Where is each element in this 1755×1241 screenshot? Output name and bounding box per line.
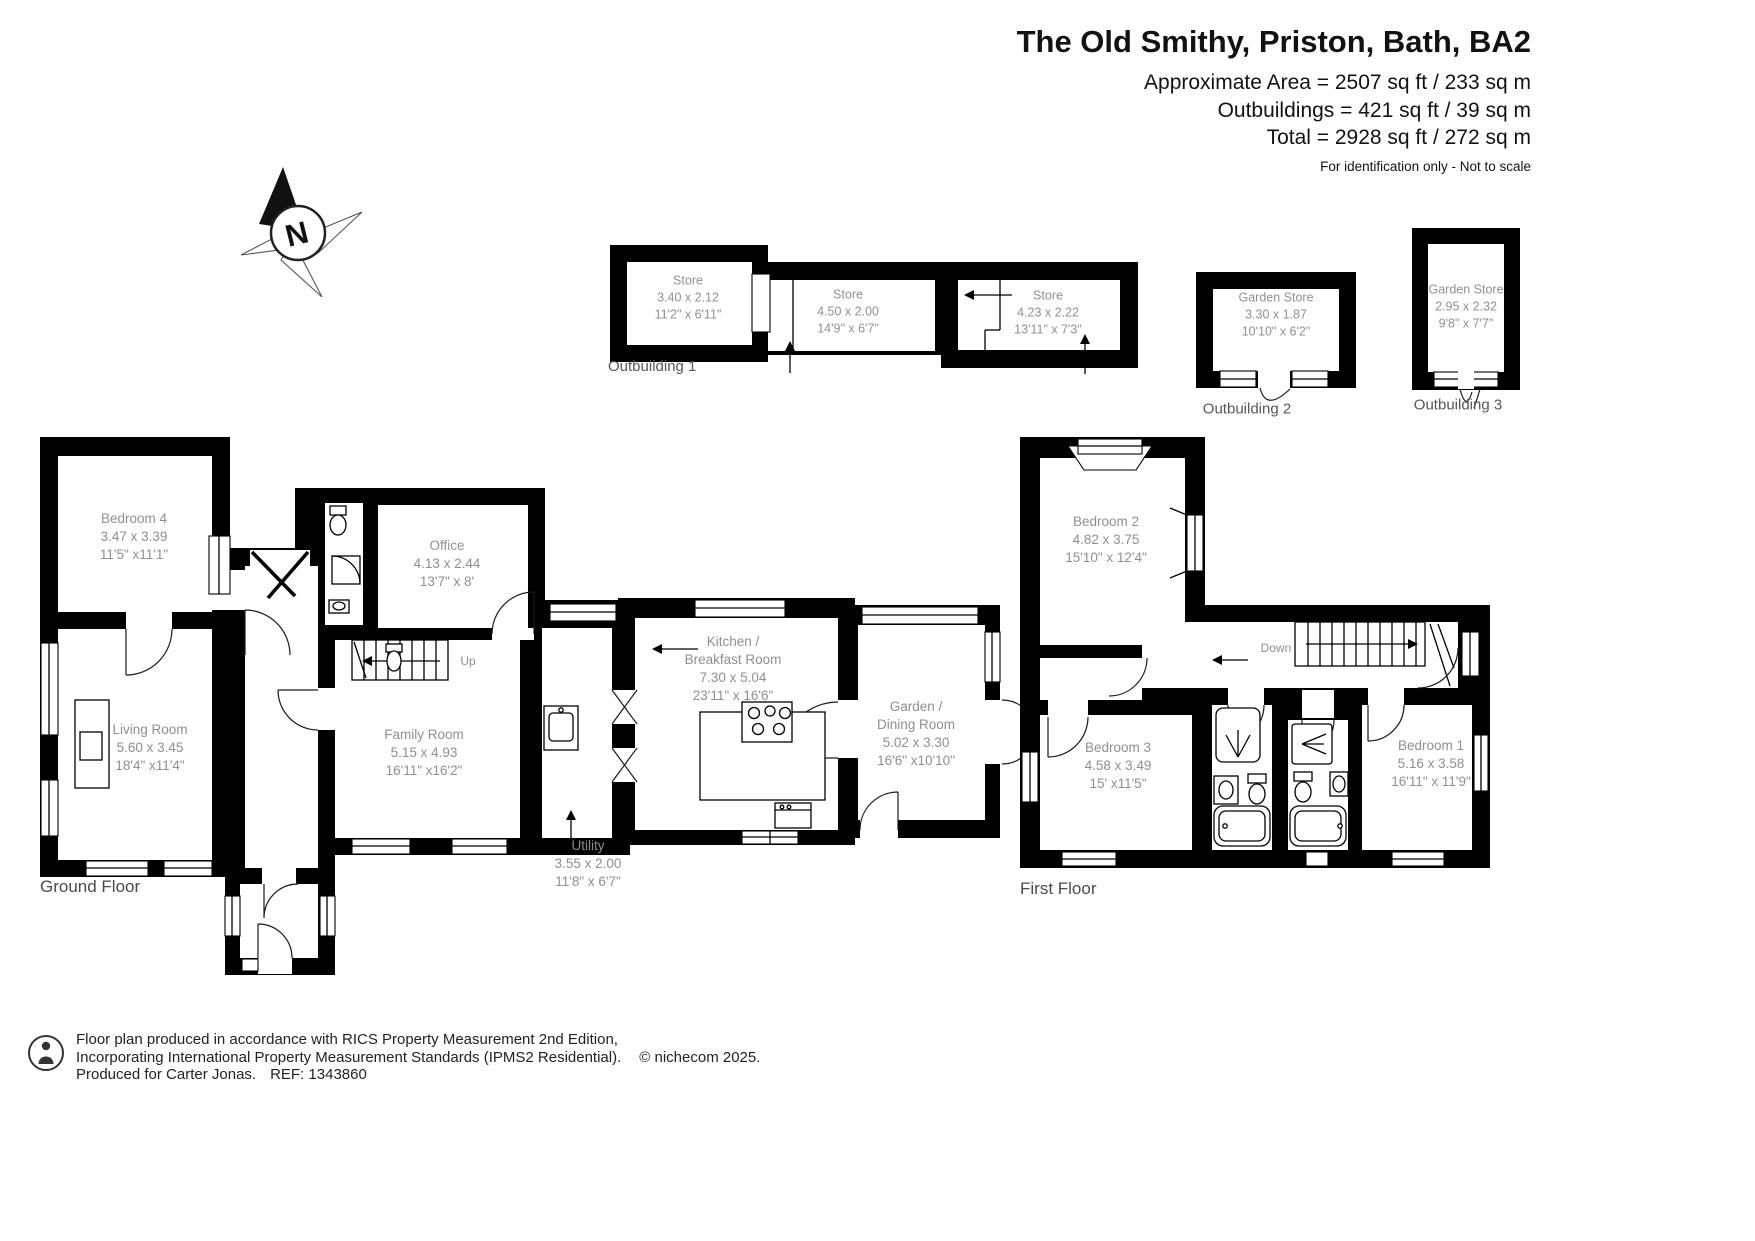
room-label-bedroom3: Bedroom 3 4.58 x 3.49 15' x11'5" <box>1085 739 1152 793</box>
room-label-store2: Store 4.50 x 2.00 14'9" x 6'7" <box>817 287 879 338</box>
disclaimer: For identification only - Not to scale <box>1017 159 1531 174</box>
room-label-garden-store2: Garden Store 3.30 x 1.87 10'10" x 6'2" <box>1238 290 1313 341</box>
shower-cubicle-icon <box>1216 708 1260 762</box>
outbuilding3-label: Outbuilding 3 <box>1414 397 1502 414</box>
bathtub-icon <box>1290 806 1346 846</box>
toilet-icon <box>1248 774 1266 804</box>
room-label-living-room: Living Room 5.60 x 3.45 18'4" x11'4" <box>112 721 187 775</box>
ground-floor-title: Ground Floor <box>40 877 140 897</box>
shower-cubicle-icon <box>1292 724 1332 764</box>
room-label-garden-store3: Garden Store 2.95 x 2.32 9'8" x 7'7" <box>1428 282 1503 333</box>
room-label-office: Office 4.13 x 2.44 13'7" x 8' <box>414 537 481 591</box>
room-label-bedroom4: Bedroom 4 3.47 x 3.39 11'5" x11'1" <box>100 510 168 564</box>
footer-line3: Produced for Carter Jonas.REF: 1343860 <box>76 1066 760 1084</box>
copyright: © nichecom 2025. <box>639 1049 760 1066</box>
toilet-icon <box>330 506 346 535</box>
utility-sink-icon <box>544 706 578 750</box>
sink-icon <box>329 600 349 613</box>
outbuilding2-label: Outbuilding 2 <box>1203 401 1291 418</box>
reference-number: REF: 1343860 <box>270 1066 367 1083</box>
bathtub-icon <box>1214 806 1270 846</box>
ground-floor-walls <box>40 437 1002 975</box>
person-scale-icon <box>29 1036 63 1070</box>
area-summary: Approximate Area = 2507 sq ft / 233 sq m… <box>1017 69 1531 152</box>
footer-line1: Floor plan produced in accordance with R… <box>76 1031 760 1049</box>
header: The Old Smithy, Priston, Bath, BA2 Appro… <box>1017 24 1531 174</box>
page-title: The Old Smithy, Priston, Bath, BA2 <box>1017 24 1531 60</box>
hob-icon <box>742 702 792 742</box>
stairs-up-label: Up <box>460 654 475 668</box>
room-label-utility: Utility 3.55 x 2.00 11'8" x 6'7" <box>555 837 622 891</box>
outbuilding1-label: Outbuilding 1 <box>608 358 696 375</box>
first-floor-title: First Floor <box>1020 879 1097 899</box>
toilet-icon <box>1294 772 1312 802</box>
room-label-bedroom1: Bedroom 1 5.16 x 3.58 16'11" x 11'9" <box>1391 737 1471 791</box>
footer: Floor plan produced in accordance with R… <box>76 1031 760 1084</box>
appliance-icon <box>775 803 811 828</box>
room-label-family-room: Family Room 5.15 x 4.93 16'11" x16'2" <box>384 726 464 780</box>
room-label-store3: Store 4.23 x 2.22 13'11" x 7'3" <box>1014 288 1082 339</box>
footer-line2: Incorporating International Property Mea… <box>76 1049 760 1067</box>
room-label-garden-dining: Garden / Dining Room 5.02 x 3.30 16'6" x… <box>877 698 955 770</box>
approximate-area: Approximate Area = 2507 sq ft / 233 sq m <box>1017 69 1531 97</box>
room-label-store1: Store 3.40 x 2.12 11'2" x 6'11" <box>655 273 722 324</box>
room-label-kitchen: Kitchen / Breakfast Room 7.30 x 5.04 23'… <box>685 633 782 705</box>
room-label-bedroom2: Bedroom 2 4.82 x 3.75 15'10" x 12'4" <box>1065 513 1147 567</box>
outbuildings-area: Outbuildings = 421 sq ft / 39 sq m <box>1017 97 1531 125</box>
sink-icon <box>1330 772 1348 796</box>
toilet-icon <box>386 644 402 671</box>
floorplan-page: The Old Smithy, Priston, Bath, BA2 Appro… <box>0 0 1755 1241</box>
total-area: Total = 2928 sq ft / 272 sq m <box>1017 124 1531 152</box>
stairs-down-label: Down <box>1261 641 1292 655</box>
shower-icon <box>332 556 360 584</box>
sink-icon <box>1214 776 1238 804</box>
